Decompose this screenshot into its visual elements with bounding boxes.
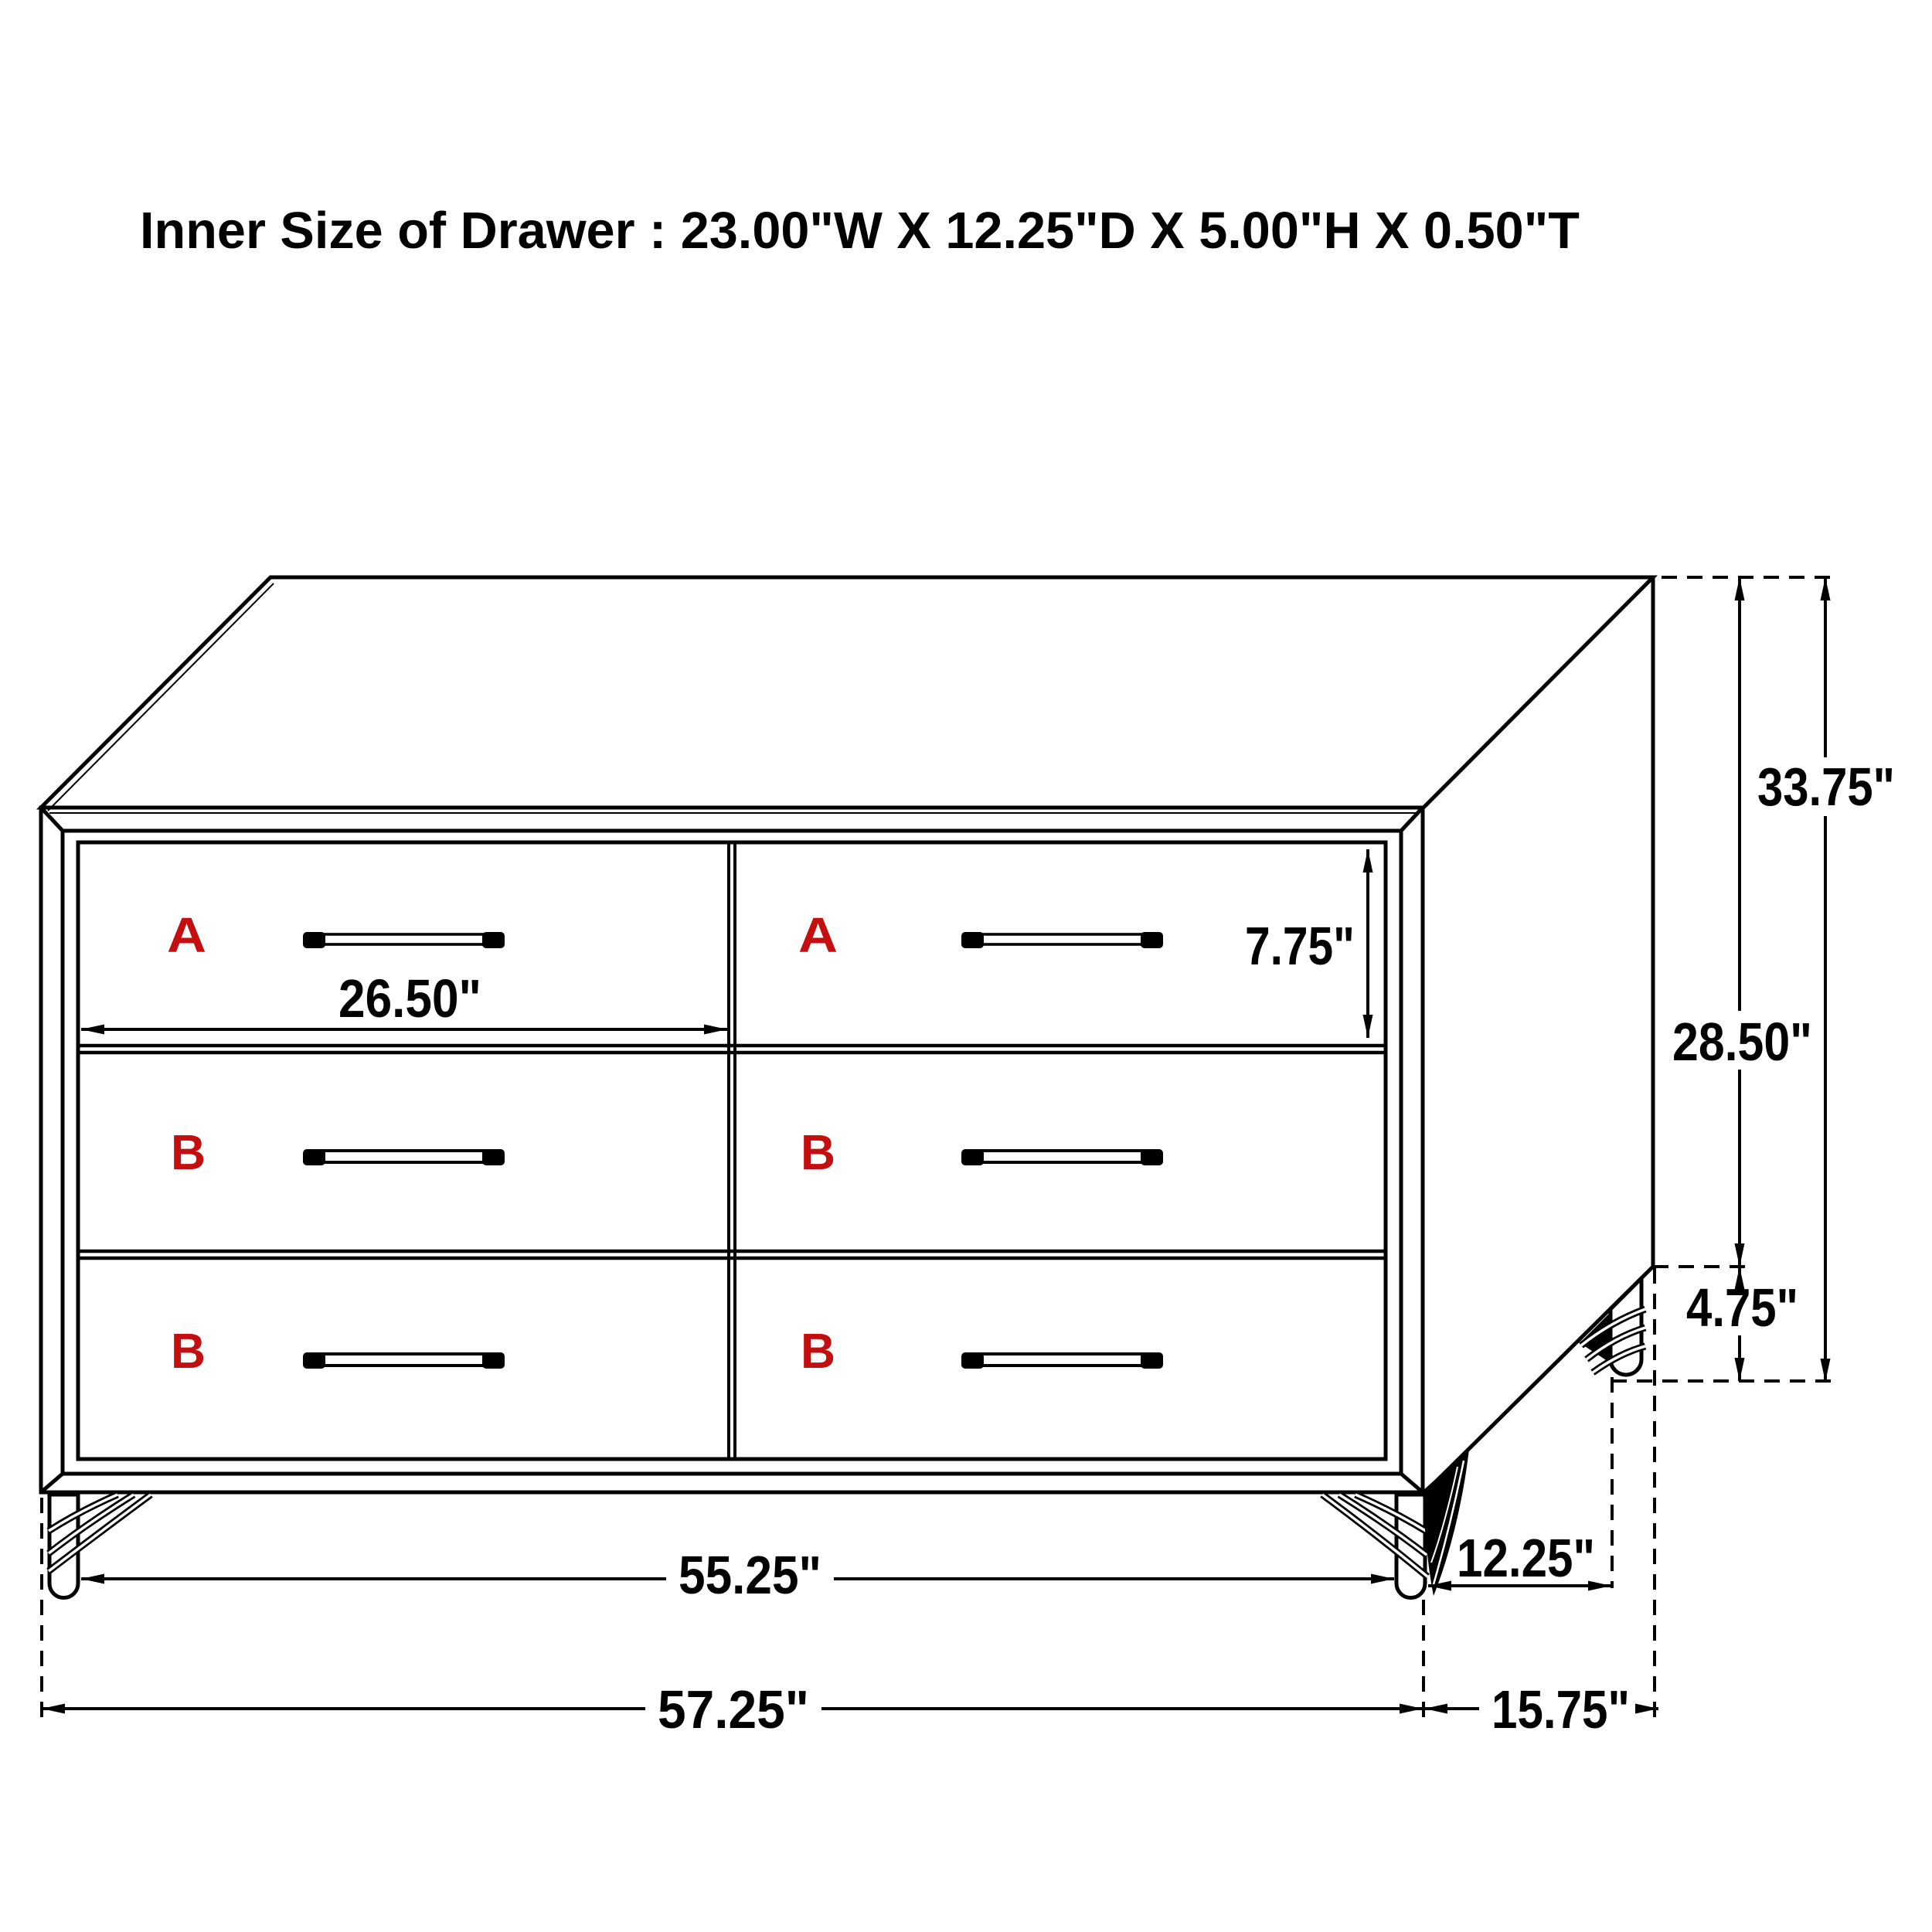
svg-text:12.25": 12.25" — [1457, 1528, 1595, 1588]
svg-text:B: B — [171, 1124, 206, 1180]
svg-text:A: A — [798, 907, 838, 963]
svg-text:33.75": 33.75" — [1757, 757, 1895, 817]
svg-text:57.25": 57.25" — [658, 1679, 809, 1740]
svg-text:B: B — [801, 1323, 835, 1379]
svg-text:A: A — [167, 907, 206, 963]
svg-text:26.50": 26.50" — [338, 968, 481, 1029]
svg-text:55.25": 55.25" — [679, 1545, 821, 1605]
svg-text:4.75": 4.75" — [1686, 1277, 1798, 1338]
svg-text:7.75": 7.75" — [1245, 916, 1355, 976]
svg-text:B: B — [171, 1323, 206, 1379]
svg-text:Inner Size of Drawer : 23.00"W: Inner Size of Drawer : 23.00"W X 12.25"D… — [140, 202, 1580, 260]
svg-text:15.75": 15.75" — [1492, 1679, 1630, 1740]
svg-text:B: B — [801, 1124, 835, 1180]
svg-text:28.50": 28.50" — [1672, 1012, 1812, 1072]
